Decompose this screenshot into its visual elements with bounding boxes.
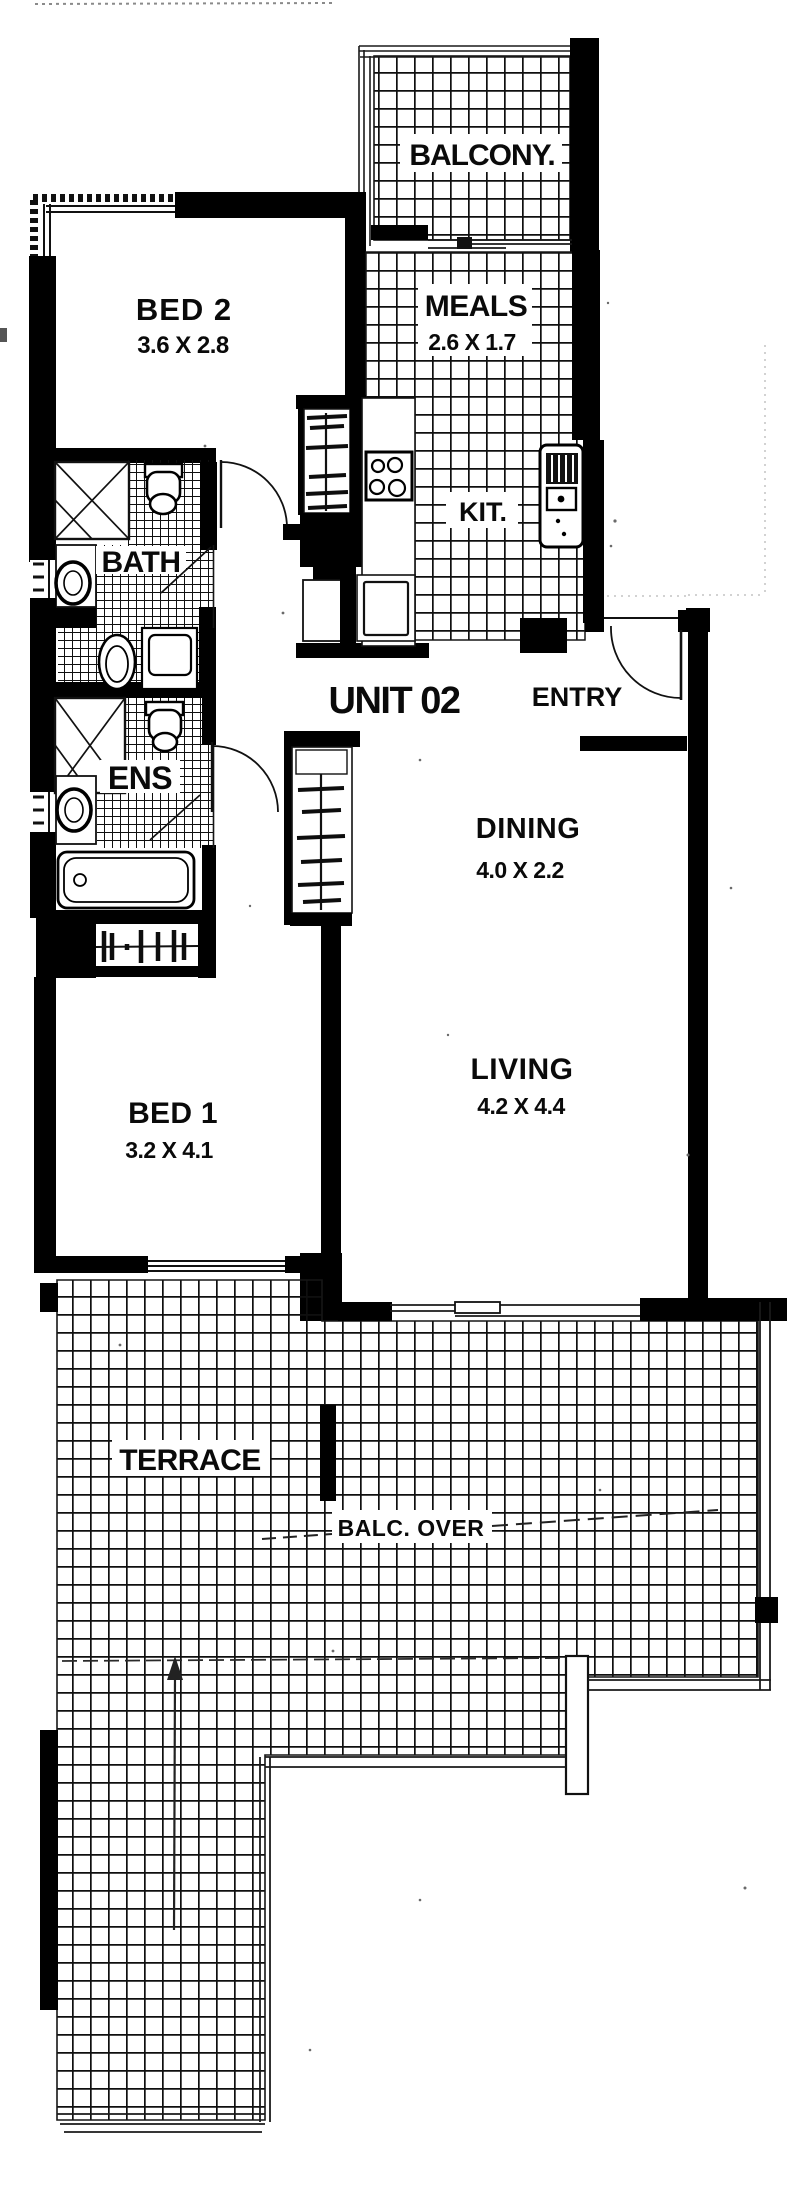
svg-text:BALCONY.: BALCONY. [409, 139, 554, 172]
svg-text:4.2 X 4.4: 4.2 X 4.4 [477, 1093, 565, 1119]
svg-text:BED 1: BED 1 [128, 1097, 218, 1130]
svg-text:ENTRY: ENTRY [532, 682, 623, 712]
svg-text:LIVING: LIVING [470, 1053, 573, 1086]
svg-text:BED 2: BED 2 [136, 292, 232, 327]
svg-text:DINING: DINING [476, 813, 581, 845]
svg-text:3.2 X 4.1: 3.2 X 4.1 [125, 1137, 213, 1163]
svg-text:BALC. OVER: BALC. OVER [338, 1515, 485, 1541]
svg-text:BATH: BATH [101, 546, 180, 579]
svg-text:2.6 X 1.7: 2.6 X 1.7 [428, 329, 516, 355]
svg-text:MEALS: MEALS [425, 290, 528, 323]
svg-text:4.0 X 2.2: 4.0 X 2.2 [476, 857, 564, 883]
svg-text:UNIT 02: UNIT 02 [329, 680, 460, 722]
svg-text:KIT.: KIT. [459, 497, 507, 527]
svg-text:3.6 X 2.8: 3.6 X 2.8 [137, 332, 229, 359]
svg-text:ENS: ENS [108, 760, 172, 796]
svg-text:TERRACE: TERRACE [119, 1444, 261, 1477]
